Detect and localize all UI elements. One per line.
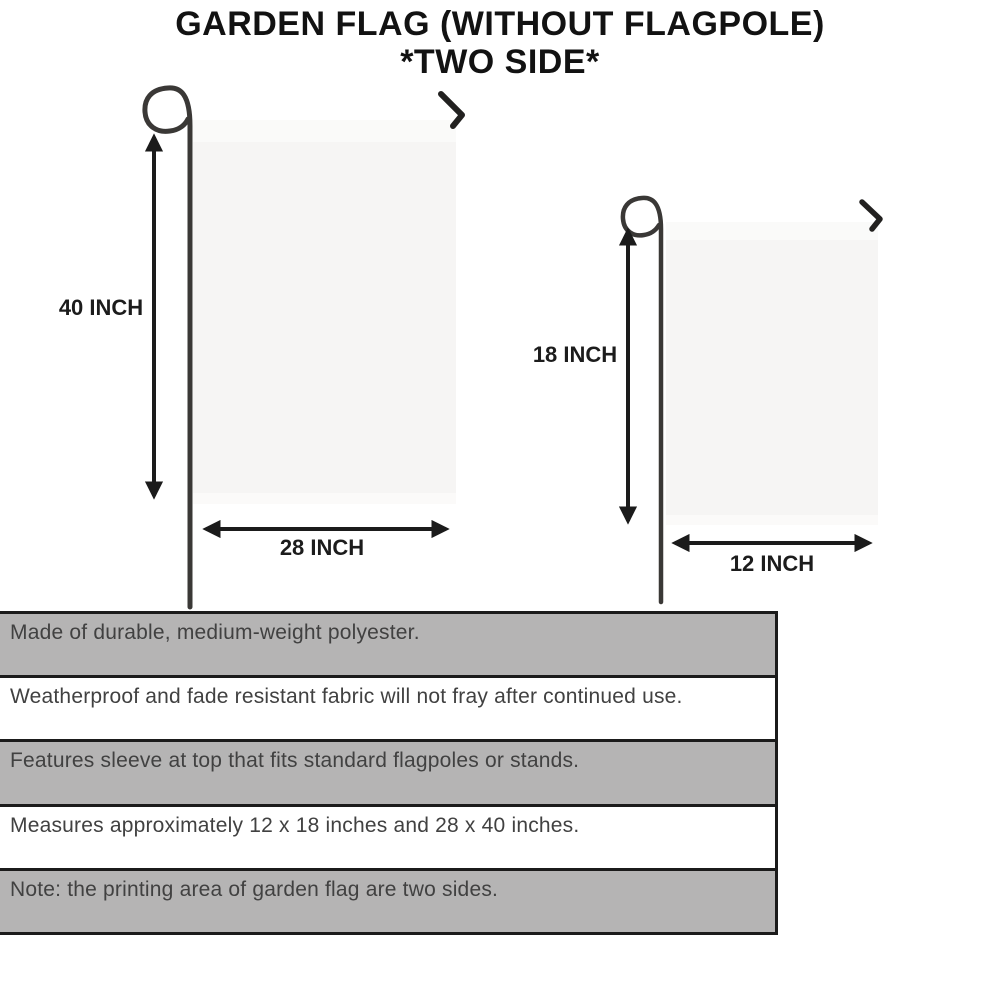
large-flag-height-label: 40 INCH — [31, 295, 171, 321]
large-flagpole — [145, 88, 190, 607]
large-flag-diagram — [145, 88, 462, 607]
small-flag-sleeve — [666, 222, 878, 240]
small-flag-diagram — [623, 198, 880, 602]
feature-row-note: Note: the printing area of garden flag a… — [0, 871, 778, 935]
feature-list: Made of durable, medium-weight polyester… — [0, 611, 778, 935]
feature-row-measurements: Measures approximately 12 x 18 inches an… — [0, 807, 778, 871]
small-flag-height-label: 18 INCH — [505, 342, 645, 368]
feature-row-sleeve: Features sleeve at top that fits standar… — [0, 742, 778, 806]
large-flag-width-label: 28 INCH — [252, 535, 392, 561]
feature-row-material: Made of durable, medium-weight polyester… — [0, 614, 778, 678]
product-size-chart: GARDEN FLAG (WITHOUT FLAGPOLE) *TWO SIDE… — [0, 0, 1000, 1000]
feature-row-weatherproof: Weatherproof and fade resistant fabric w… — [0, 678, 778, 742]
small-flag-width-label: 12 INCH — [702, 551, 842, 577]
small-flag — [666, 222, 878, 525]
large-flag — [193, 120, 456, 504]
large-flag-sleeve — [193, 120, 456, 142]
